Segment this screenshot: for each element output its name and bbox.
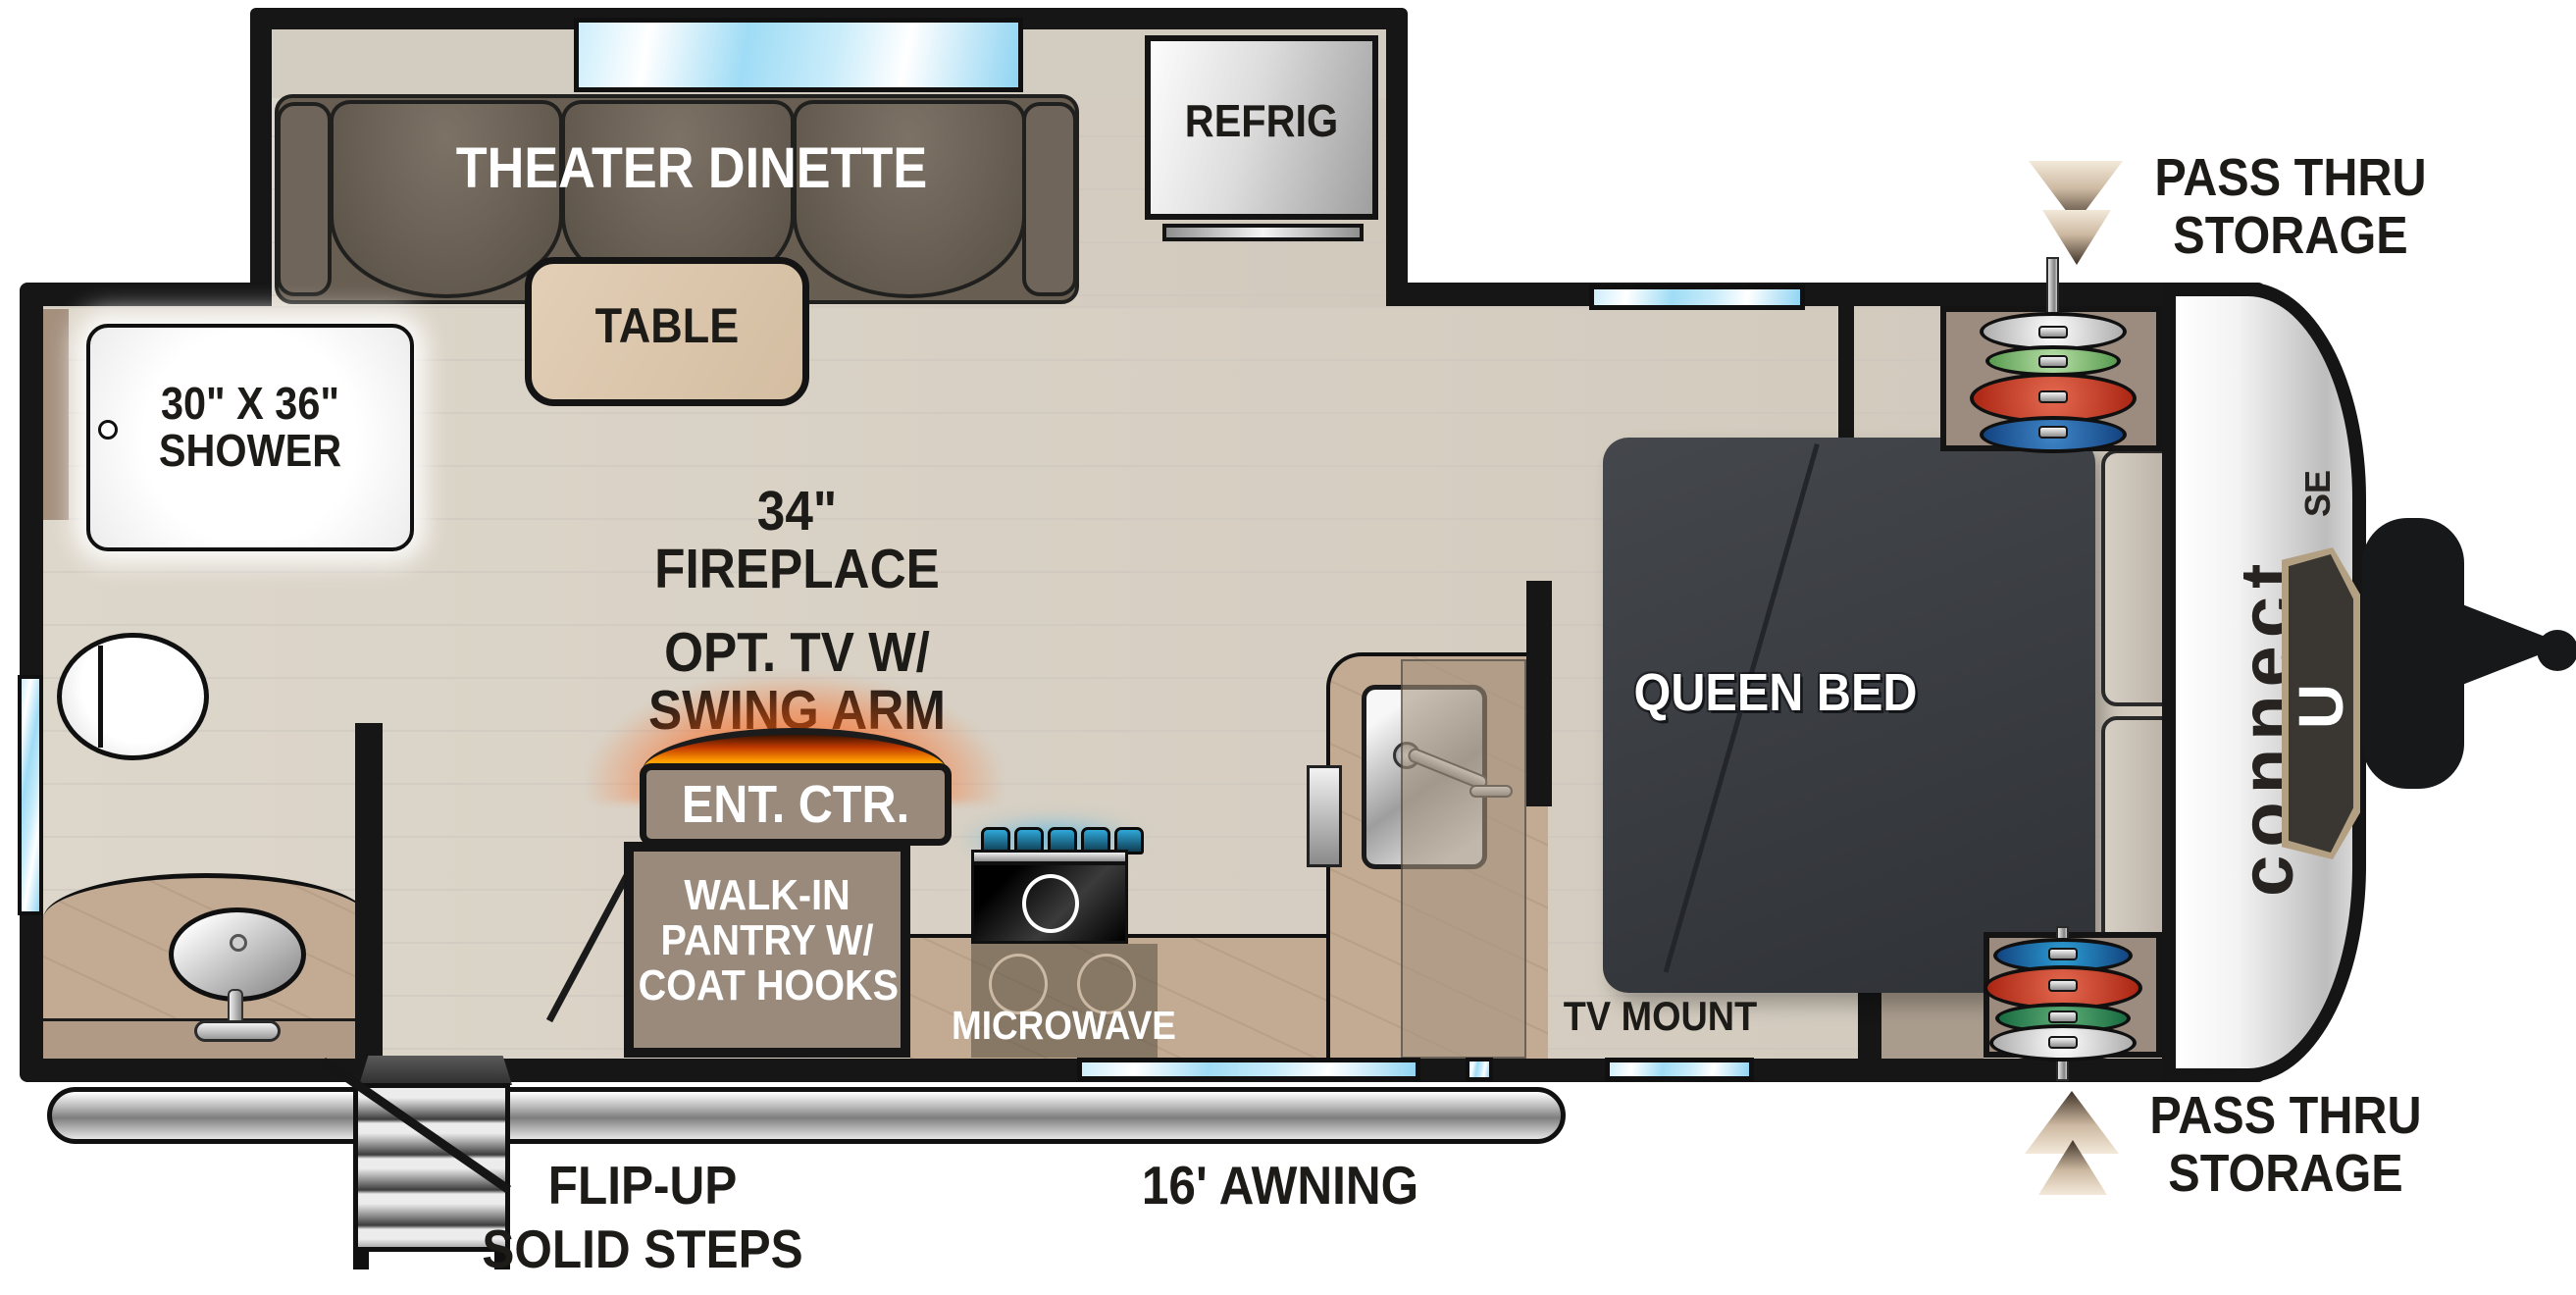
pass-thru-bottom-label: PASS THRU STORAGE	[2127, 1087, 2445, 1204]
tv-mount-label: TV MOUNT	[1561, 995, 1760, 1038]
pole-collar	[2048, 979, 2078, 992]
brand-logo: connect SE U	[2195, 422, 2343, 1030]
steps-label: FLIP-UP SOLID STEPS	[466, 1154, 819, 1281]
pantry-line2: PANTRY W/	[660, 916, 873, 964]
pole-collar	[2048, 1036, 2078, 1049]
brand-logo-series: SE	[2297, 449, 2333, 538]
kitchen-bottom-window	[1077, 1058, 1420, 1081]
steps-line2: SOLID STEPS	[482, 1218, 802, 1279]
pole-collar	[2038, 326, 2068, 338]
pass-thru-bottom-line1: PASS THRU	[2149, 1086, 2421, 1145]
fireplace-size: 34"	[757, 480, 837, 543]
ent-ctr-label: ENT. CTR.	[655, 777, 936, 832]
shower-word: SHOWER	[159, 425, 341, 476]
sofa-armrest-left	[277, 102, 332, 296]
sofa-armrest-right	[1022, 102, 1077, 296]
steps-foot	[353, 1250, 369, 1269]
bathroom-sink	[169, 907, 306, 1002]
pole-collar	[2048, 948, 2078, 960]
pass-thru-top-line1: PASS THRU	[2154, 148, 2426, 207]
refrig-label: REFRIG	[1157, 98, 1366, 145]
bathroom-faucet-base	[194, 1020, 281, 1042]
entry-platform	[359, 1056, 512, 1085]
queen-bed-label: QUEEN BED	[1630, 665, 1922, 720]
pass-thru-bottom-line2: STORAGE	[2168, 1144, 2402, 1203]
floorplan-canvas: THEATER DINETTE REFRIG TABLE 30" X 36" S…	[0, 0, 2576, 1295]
pole-collar	[2038, 355, 2068, 368]
bath-wall-panel	[43, 309, 69, 520]
door-side-window	[1466, 1058, 1493, 1081]
stove-burner	[1022, 874, 1079, 933]
refrigerator-door	[1162, 224, 1364, 241]
brand-logo-badge-letter: U	[2285, 674, 2357, 739]
entry-door-glass	[1307, 765, 1342, 867]
theater-dinette-label: THEATER DINETTE	[361, 139, 1023, 198]
microwave-label: MICROWAVE	[952, 1005, 1163, 1047]
pole-collar	[2038, 390, 2068, 403]
steps-line1: FLIP-UP	[548, 1155, 738, 1216]
bedroom-bottom-window	[1605, 1058, 1754, 1081]
brand-logo-badge-inner: U	[2289, 554, 2353, 853]
hitch-coupler	[2537, 630, 2576, 671]
fireplace-word: FIREPLACE	[654, 538, 940, 600]
bathroom-partition-wall	[355, 723, 383, 1059]
awning-label: 16' AWNING	[1130, 1158, 1430, 1214]
shower-label: 30" X 36" SHOWER	[109, 381, 391, 475]
bedroom-top-window	[1589, 285, 1805, 310]
pass-thru-top-label: PASS THRU STORAGE	[2137, 149, 2446, 266]
kitchen-bedroom-wall	[1526, 581, 1552, 806]
awning-bar	[47, 1087, 1566, 1144]
entry-door	[1401, 659, 1526, 1059]
propane-cover	[2362, 518, 2464, 789]
brand-logo-badge: U	[2282, 547, 2360, 859]
slide-window	[574, 18, 1023, 92]
pantry-line1: WALK-IN	[684, 871, 850, 919]
table-label: TABLE	[540, 300, 796, 351]
bathroom-window	[18, 675, 43, 915]
bathroom-sink-drain	[230, 934, 247, 952]
shower-size: 30" X 36"	[161, 378, 339, 429]
pass-thru-top-line2: STORAGE	[2173, 206, 2407, 265]
pole-collar	[2048, 1010, 2078, 1023]
toilet	[57, 633, 209, 760]
pantry-line3: COAT HOOKS	[639, 961, 899, 1010]
hitch-tongue	[2462, 604, 2545, 685]
toilet-tank-seam	[98, 646, 103, 748]
fireplace-label: 34" FIREPLACE	[623, 483, 972, 599]
pantry-label: WALK-IN PANTRY W/ COAT HOOKS	[639, 873, 897, 1008]
pole-collar	[2038, 426, 2068, 439]
